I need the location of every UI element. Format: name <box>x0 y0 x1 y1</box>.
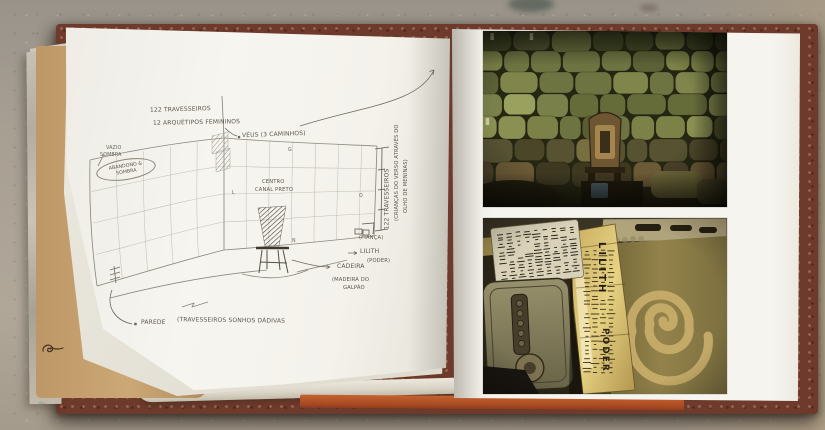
annotation-sombra: SOMBRA <box>100 153 122 159</box>
right-page-gutter-shadow <box>452 26 482 404</box>
surface-stain <box>508 0 554 12</box>
annotation-madeira-line2: GALPÃO <box>343 286 365 292</box>
annotation-centro: CENTRO <box>262 180 285 186</box>
surface-stain-small <box>640 4 658 12</box>
annotation-parede-sub: (TRAVESSEIROS SONHOS DÁDIVAS <box>177 317 285 325</box>
sketch-letter-o: O <box>359 194 363 200</box>
spiral-doodle-icon <box>38 340 66 358</box>
wall-outline <box>90 96 377 307</box>
sketch-letter-n: N <box>292 239 296 245</box>
corner-hatch-seam <box>216 148 230 172</box>
annotation-criancas-line1: (CRIANÇAS DO VERSO ATRAVÉS DO <box>395 124 401 221</box>
left-page-sketch: 122 TRAVESSEIROS 12 ARQUÉTIPOS FEMININOS… <box>62 20 450 392</box>
photo2-vignette <box>483 218 727 394</box>
right-page-photos: LILITH PODER <box>452 26 800 404</box>
annotation-lilith: LILITH <box>360 249 379 256</box>
sketch-letter-g: G <box>288 148 292 154</box>
annotation-parede: PAREDE <box>141 320 166 327</box>
sketch-letter-l: L <box>232 191 235 197</box>
leader-dot-parede <box>134 323 137 326</box>
leader-dot-veus <box>238 136 241 139</box>
photo-vignette <box>483 31 727 207</box>
annotation-poder: (PODER) <box>367 259 390 265</box>
photo-pillow-wall <box>483 31 727 207</box>
set-design-sketch <box>62 20 450 392</box>
photo-golden-papers: LILITH PODER <box>483 218 727 394</box>
annotation-vazio: VAZIO <box>106 146 121 152</box>
annotation-122-travesseiros-side: 122 TRAVESSEIROS <box>385 169 392 230</box>
annotation-cadeira: CADEIRA <box>337 264 365 271</box>
annotation-canal-preto: CANAL PRETO <box>255 188 293 194</box>
annotation-fianca: (FIANÇA) <box>359 236 383 242</box>
annotation-madeira-line1: (MADEIRA DO <box>332 278 369 284</box>
chair-sketch <box>256 206 289 273</box>
left-page-gutter-shadow <box>408 20 450 392</box>
